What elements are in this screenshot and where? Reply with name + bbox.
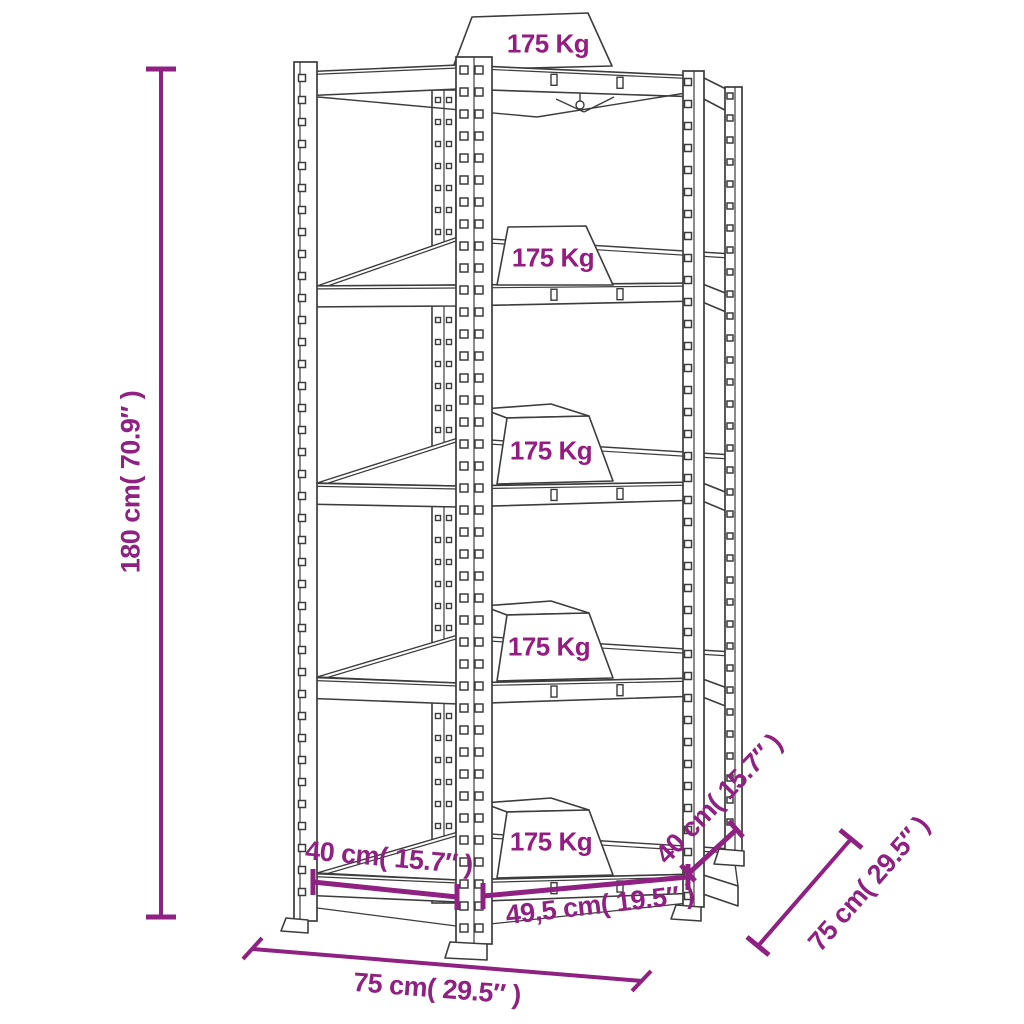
top-shelf-underside bbox=[318, 93, 686, 117]
shelf-4-capacity-label: 175 Kg bbox=[508, 632, 590, 663]
shelf-1-capacity-label: 175 Kg bbox=[507, 29, 589, 60]
diagram-canvas: 175 Kg 175 Kg 175 Kg 175 Kg 175 Kg 180 c… bbox=[0, 0, 1024, 1024]
height-dimension-label: 180 cm( 70.9″ ) bbox=[116, 391, 147, 574]
left-post bbox=[281, 62, 317, 933]
shelf-2-capacity-label: 175 Kg bbox=[512, 243, 594, 274]
shelf-level-1 bbox=[300, 65, 738, 117]
shelf-5-capacity-label: 175 Kg bbox=[510, 827, 592, 858]
shelf-3-capacity-label: 175 Kg bbox=[510, 436, 592, 467]
